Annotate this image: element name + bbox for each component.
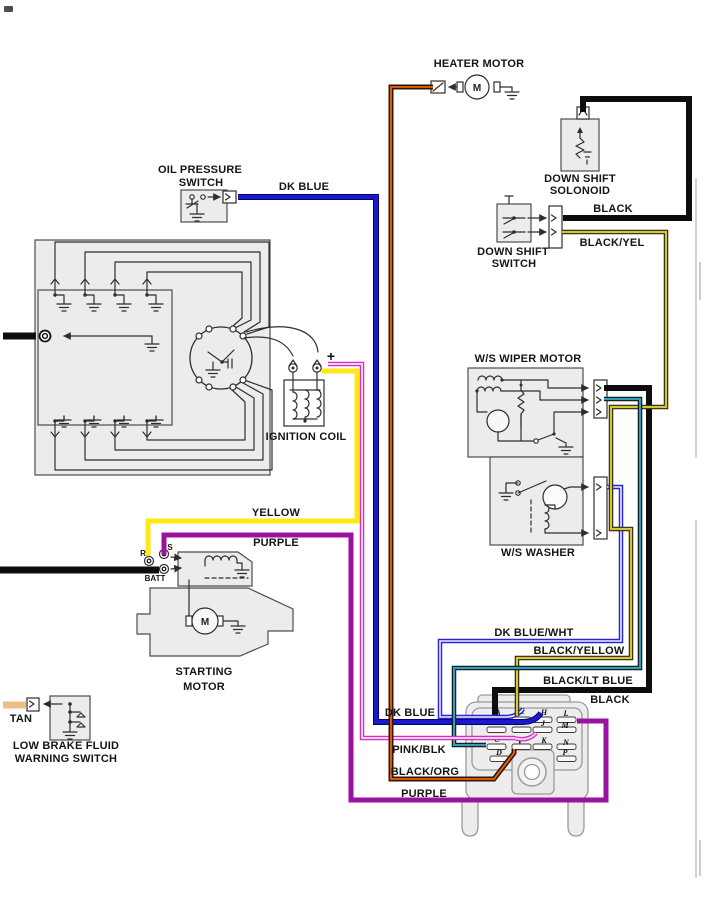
- terminal-batt-label: BATT: [145, 574, 166, 583]
- down-shift-switch-label-2: SWITCH: [492, 258, 537, 270]
- distributor: [190, 326, 252, 390]
- ws-wiper-motor: [468, 368, 607, 457]
- heater-motor-m-symbol: M: [473, 83, 481, 94]
- wire-label-black-org: BLACK/ORG: [391, 766, 459, 778]
- wire-label-black-yel: BLACK/YEL: [580, 237, 645, 249]
- pin-m: M: [560, 721, 569, 730]
- wire-label-dk-blue-bottom: DK BLUE: [385, 707, 435, 719]
- starting-motor-label-1: STARTING: [175, 666, 232, 678]
- coil-plus-symbol: +: [327, 348, 335, 364]
- wire-label-yellow: YELLOW: [252, 507, 301, 519]
- terminal-s-label: S: [167, 543, 173, 552]
- pin-k: K: [540, 736, 547, 745]
- low-brake-label-1: LOW BRAKE FLUID: [13, 740, 119, 752]
- ws-washer: [490, 457, 607, 545]
- low-brake-fluid-warning-switch: [27, 696, 90, 740]
- wiring-diagram-page: A E H L J M C V K N D P: [0, 0, 713, 901]
- down-shift-solonoid: [561, 107, 599, 171]
- pin-d: D: [495, 748, 502, 757]
- ignition-coil-label: IGNITION COIL: [266, 431, 347, 443]
- down-shift-solonoid-label-2: SOLONOID: [550, 185, 610, 197]
- wire-label-dk-blue-top: DK BLUE: [279, 181, 329, 193]
- oil-pressure-switch: [181, 190, 236, 222]
- pin-l: L: [563, 709, 569, 718]
- ws-wiper-motor-label: W/S WIPER MOTOR: [475, 353, 582, 365]
- wire-label-pink-blk: PINK/BLK: [392, 744, 446, 756]
- heater-motor-label: HEATER MOTOR: [434, 58, 525, 70]
- wire-label-black-bottom: BLACK: [590, 694, 630, 706]
- terminal-r-label: R: [140, 549, 146, 558]
- starting-motor-m-symbol: M: [201, 617, 209, 628]
- starting-motor: [137, 550, 293, 657]
- wire-label-dk-blue-wht: DK BLUE/WHT: [494, 627, 573, 639]
- ws-washer-label: W/S WASHER: [501, 547, 575, 559]
- wire-label-tan: TAN: [10, 713, 32, 725]
- ignition-coil: [284, 360, 324, 426]
- wire-label-black-yellow: BLACK/YELLOW: [533, 645, 624, 657]
- oil-pressure-switch-label-2: SWITCH: [179, 177, 224, 189]
- wire-label-black-lt-blue: BLACK/LT BLUE: [543, 675, 633, 687]
- wire-label-purple-mid: PURPLE: [253, 537, 299, 549]
- starting-motor-label-2: MOTOR: [183, 681, 225, 693]
- down-shift-switch-label-1: DOWN SHIFT: [477, 246, 549, 258]
- wiring-diagram: A E H L J M C V K N D P: [0, 0, 713, 901]
- wire-label-black-top: BLACK: [593, 203, 633, 215]
- low-brake-label-2: WARNING SWITCH: [15, 753, 117, 765]
- pin-p: P: [563, 748, 568, 757]
- terminal-batt: [160, 565, 169, 574]
- wire-label-purple-bottom: PURPLE: [401, 788, 447, 800]
- down-shift-switch: [497, 196, 562, 248]
- oil-pressure-switch-label-1: OIL PRESSURE: [158, 164, 242, 176]
- ground-icon: [505, 88, 519, 99]
- down-shift-solonoid-label-1: DOWN SHIFT: [544, 173, 616, 185]
